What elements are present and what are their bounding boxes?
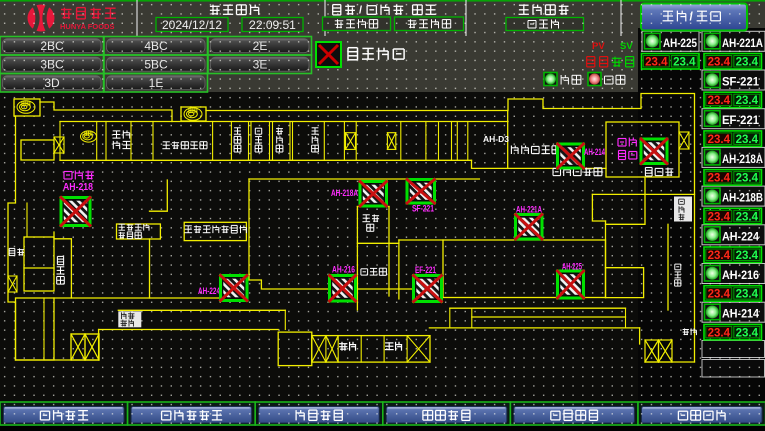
svg-text:23.4: 23.4 bbox=[736, 57, 759, 69]
svg-text:23.4: 23.4 bbox=[673, 57, 696, 69]
svg-text:AH-216: AH-216 bbox=[722, 270, 759, 282]
svg-text:SV: SV bbox=[620, 41, 633, 52]
svg-text:AH-D3: AH-D3 bbox=[483, 134, 509, 144]
svg-text:23.4: 23.4 bbox=[708, 250, 731, 262]
svg-text:23.4: 23.4 bbox=[708, 173, 731, 185]
svg-text:EF-221: EF-221 bbox=[722, 115, 760, 127]
svg-text:SF-221: SF-221 bbox=[412, 204, 435, 215]
svg-text:AH-218: AH-218 bbox=[63, 182, 93, 193]
svg-text:23.4: 23.4 bbox=[708, 57, 731, 69]
svg-text:23.4: 23.4 bbox=[645, 57, 668, 69]
svg-text:AH-224: AH-224 bbox=[722, 231, 760, 243]
svg-text:23.4: 23.4 bbox=[736, 327, 759, 339]
svg-text:23.4: 23.4 bbox=[736, 95, 759, 107]
svg-text:23.4: 23.4 bbox=[736, 211, 759, 223]
svg-text:PV: PV bbox=[592, 41, 605, 52]
svg-text:23.4: 23.4 bbox=[708, 327, 731, 339]
svg-text:23.4: 23.4 bbox=[736, 134, 759, 146]
svg-text:23.4: 23.4 bbox=[736, 250, 759, 262]
svg-text:23.4: 23.4 bbox=[708, 211, 731, 223]
svg-text:AH-214: AH-214 bbox=[722, 309, 760, 321]
svg-text:23.4: 23.4 bbox=[708, 134, 731, 146]
svg-text:AH-225: AH-225 bbox=[663, 38, 698, 50]
svg-text:23.4: 23.4 bbox=[736, 173, 759, 185]
svg-text:AH-221A: AH-221A bbox=[722, 38, 763, 50]
svg-text:23.4: 23.4 bbox=[708, 95, 731, 107]
svg-text:23.4: 23.4 bbox=[708, 289, 731, 301]
svg-text:AH-214: AH-214 bbox=[584, 147, 605, 158]
svg-text:AH-218A: AH-218A bbox=[722, 154, 763, 166]
svg-text:AH-216: AH-216 bbox=[332, 265, 355, 276]
svg-text:AH-218B: AH-218B bbox=[722, 193, 763, 205]
svg-text:AH-218A: AH-218A bbox=[331, 188, 358, 199]
svg-text:23.4: 23.4 bbox=[736, 289, 759, 301]
svg-text:SF-221: SF-221 bbox=[722, 77, 760, 89]
svg-text:AH-224: AH-224 bbox=[198, 286, 220, 297]
